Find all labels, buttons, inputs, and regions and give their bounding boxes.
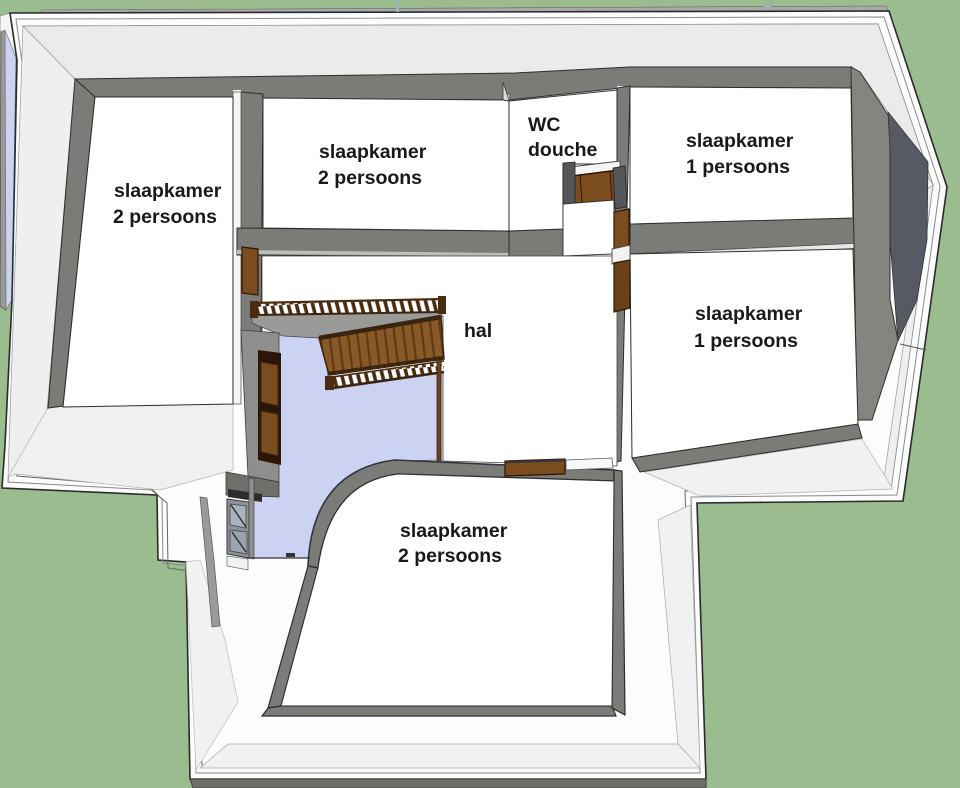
svg-text:hal: hal [464,320,492,342]
svg-text:slaapkamer: slaapkamer [114,180,222,202]
svg-text:1 persoons: 1 persoons [694,330,798,352]
svg-text:2 persoons: 2 persoons [398,545,502,567]
svg-text:slaapkamer: slaapkamer [319,141,427,163]
svg-text:slaapkamer: slaapkamer [695,303,803,325]
svg-text:slaapkamer: slaapkamer [400,520,508,542]
svg-text:WC: WC [528,114,561,136]
svg-text:slaapkamer: slaapkamer [686,130,794,152]
svg-text:1 persoons: 1 persoons [686,156,790,178]
svg-text:douche: douche [528,139,597,161]
svg-text:2 persoons: 2 persoons [113,206,217,228]
svg-text:2 persoons: 2 persoons [318,167,422,189]
